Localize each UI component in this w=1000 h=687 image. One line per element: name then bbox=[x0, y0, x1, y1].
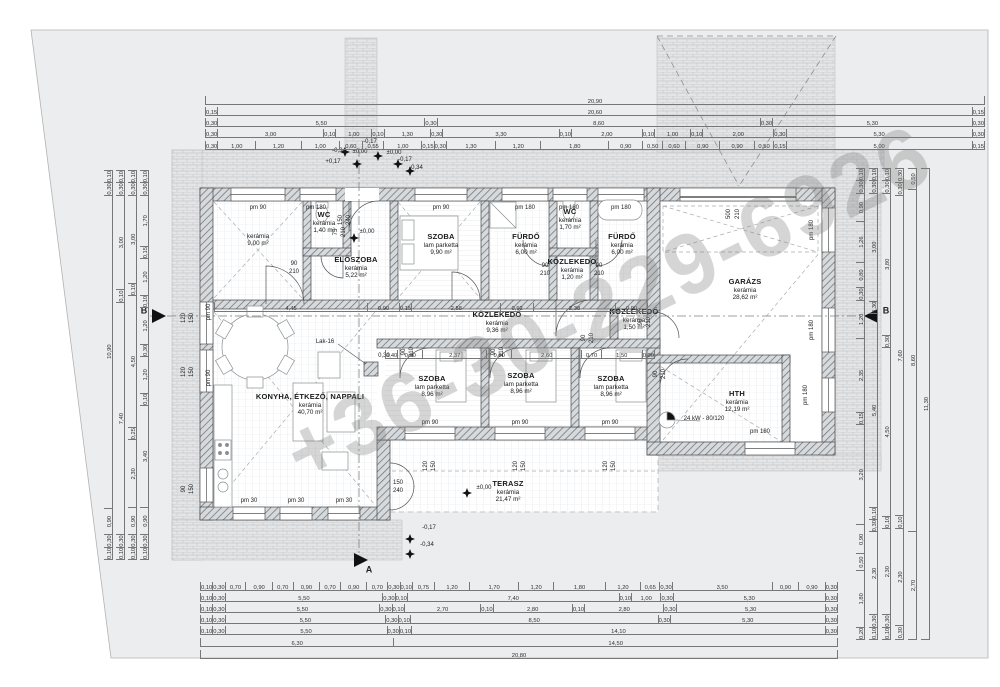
bed bbox=[616, 350, 646, 402]
floor-plan-page: kerámia9,00 m²WCkerámia1,40 m²ELŐSZOBAke… bbox=[0, 0, 1000, 687]
bed bbox=[400, 216, 458, 270]
toilet bbox=[316, 202, 328, 222]
bathtub bbox=[598, 200, 642, 220]
armchair bbox=[318, 352, 340, 378]
dining-table bbox=[222, 314, 288, 380]
boiler bbox=[659, 412, 675, 428]
toilet bbox=[563, 201, 575, 220]
shower bbox=[490, 202, 516, 228]
